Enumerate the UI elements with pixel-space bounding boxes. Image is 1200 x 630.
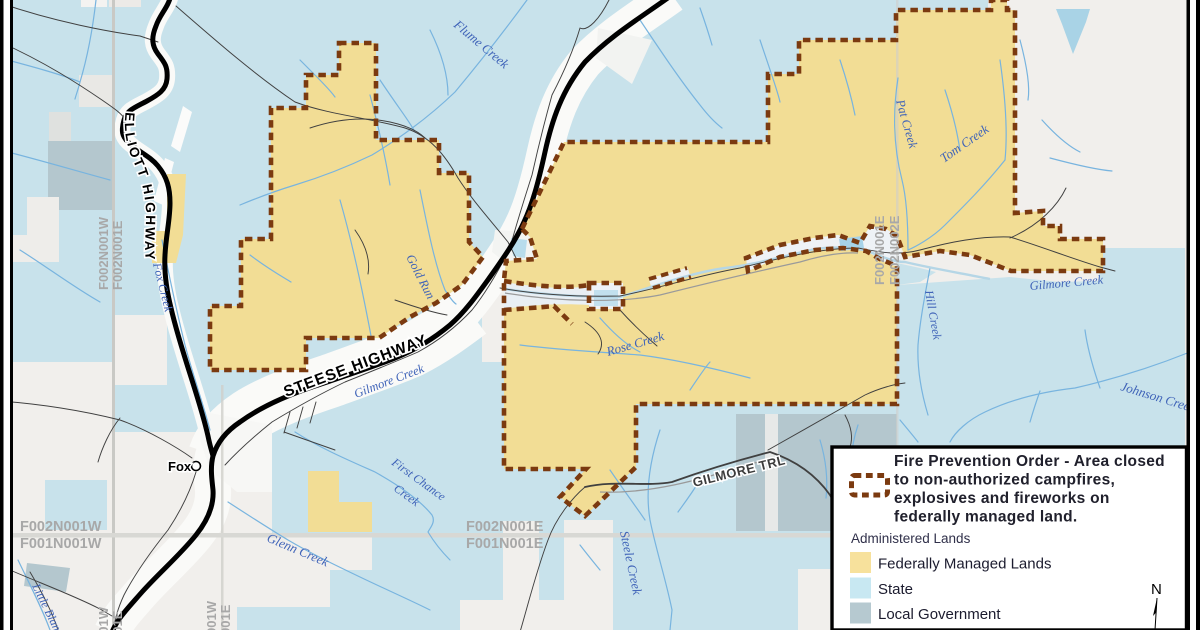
svg-text:F001N001W: F001N001W <box>96 606 111 630</box>
svg-text:F002N002E: F002N002E <box>887 215 902 285</box>
svg-text:F002N001W: F002N001W <box>96 216 111 290</box>
svg-text:Administered Lands: Administered Lands <box>851 531 971 546</box>
svg-text:F001N001W: F001N001W <box>20 536 102 552</box>
svg-text:F002N001E: F002N001E <box>872 215 887 285</box>
svg-text:F001N001E: F001N001E <box>218 604 233 630</box>
svg-text:explosives and fireworks on: explosives and fireworks on <box>894 490 1110 507</box>
svg-text:F001N001W: F001N001W <box>204 600 219 630</box>
svg-text:F002N001W: F002N001W <box>20 519 102 535</box>
svg-text:Fox: Fox <box>168 459 192 474</box>
svg-text:Local Government: Local Government <box>878 606 1001 623</box>
svg-text:federally managed land.: federally managed land. <box>894 509 1078 526</box>
svg-text:Fire Prevention Order - Area c: Fire Prevention Order - Area closed <box>894 453 1165 470</box>
svg-text:to non-authorized campfires,: to non-authorized campfires, <box>894 472 1115 489</box>
svg-text:F001N001E: F001N001E <box>466 536 544 552</box>
svg-text:State: State <box>878 581 913 598</box>
svg-text:F002N001E: F002N001E <box>466 519 544 535</box>
svg-text:N: N <box>1151 581 1162 598</box>
svg-text:Federally Managed Lands: Federally Managed Lands <box>878 556 1051 573</box>
svg-text:F001N001E: F001N001E <box>110 610 125 630</box>
svg-text:F002N001E: F002N001E <box>110 220 125 290</box>
